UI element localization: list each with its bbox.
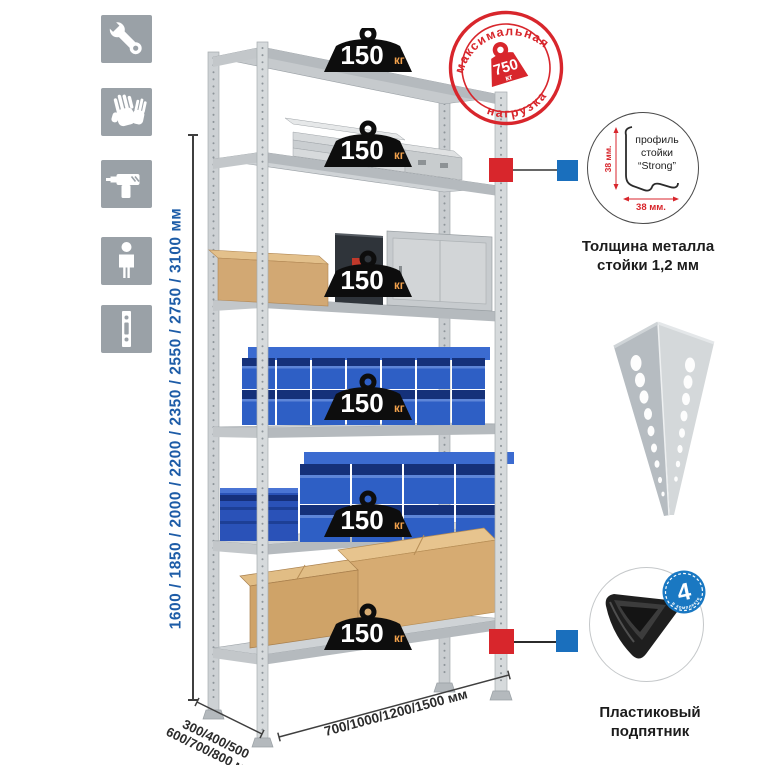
connector-top-red-marker	[489, 158, 513, 182]
foot-caption: Пластиковый подпятник	[570, 703, 730, 741]
connector-bottom-line	[514, 641, 556, 643]
svg-text:кг: кг	[394, 55, 405, 67]
connector-bottom-red-marker	[489, 629, 514, 654]
drill-icon	[101, 160, 152, 208]
max-load-stamp: максимальная нагрузка 750 кг	[446, 8, 566, 128]
load-badge-1: 150 кг	[324, 28, 412, 72]
svg-text:кг: кг	[394, 280, 405, 292]
svg-text:профиль: профиль	[635, 134, 679, 146]
svg-text:кг: кг	[394, 403, 405, 415]
person-icon	[101, 237, 152, 285]
post-profile-detail: профиль стойки “Strong” 38 мм. 38 мм.	[587, 112, 699, 224]
svg-text:кг: кг	[394, 150, 405, 162]
feature-icons-column	[101, 15, 152, 355]
included-count-badge: 4 в комплекте	[661, 569, 707, 615]
profile-caption: Толщина металла стойки 1,2 мм	[562, 237, 734, 275]
connector-top-blue-marker	[557, 160, 578, 181]
product-infographic: 1600 / 1850 / 2000 / 2200 / 2350 / 2550 …	[0, 0, 765, 765]
profile-dim-horizontal: 38 мм.	[623, 197, 679, 214]
svg-text:700/1000/1200/1500 мм: 700/1000/1200/1500 мм	[323, 686, 469, 739]
svg-text:150: 150	[340, 388, 383, 418]
svg-text:“Strong”: “Strong”	[638, 160, 676, 172]
svg-text:150: 150	[340, 265, 383, 295]
base-dimensions: 300/400/500 600/700/800 мм 700/1000/1200…	[150, 655, 570, 765]
connector-bottom-blue-marker	[556, 630, 578, 652]
wrench-icon	[101, 15, 152, 63]
profile-dim-vertical: 38 мм.	[603, 127, 619, 190]
svg-text:кг: кг	[394, 633, 405, 645]
height-dimension-label: 1600 / 1850 / 2000 / 2200 / 2350 / 2550 …	[168, 134, 185, 704]
gloves-icon	[101, 88, 152, 136]
depth-dimension-label: 300/400/500 600/700/800 мм	[164, 711, 262, 765]
height-dimension-tick-top	[188, 134, 198, 136]
svg-text:150: 150	[340, 618, 383, 648]
svg-text:кг: кг	[394, 520, 405, 532]
svg-text:150: 150	[340, 505, 383, 535]
stamp-weight-icon: 750 кг	[481, 39, 529, 87]
svg-text:38 мм.: 38 мм.	[636, 202, 666, 213]
connector-top-line	[513, 169, 557, 171]
height-dimension-line	[192, 135, 194, 700]
width-dimension-label: 700/1000/1200/1500 мм	[323, 686, 469, 739]
svg-text:стойки: стойки	[641, 147, 673, 159]
svg-text:150: 150	[340, 135, 383, 165]
svg-text:150: 150	[340, 40, 383, 70]
metal-angle-post-image	[598, 303, 748, 533]
svg-text:38 мм.: 38 мм.	[603, 146, 613, 173]
rack-profile-icon	[101, 305, 152, 353]
